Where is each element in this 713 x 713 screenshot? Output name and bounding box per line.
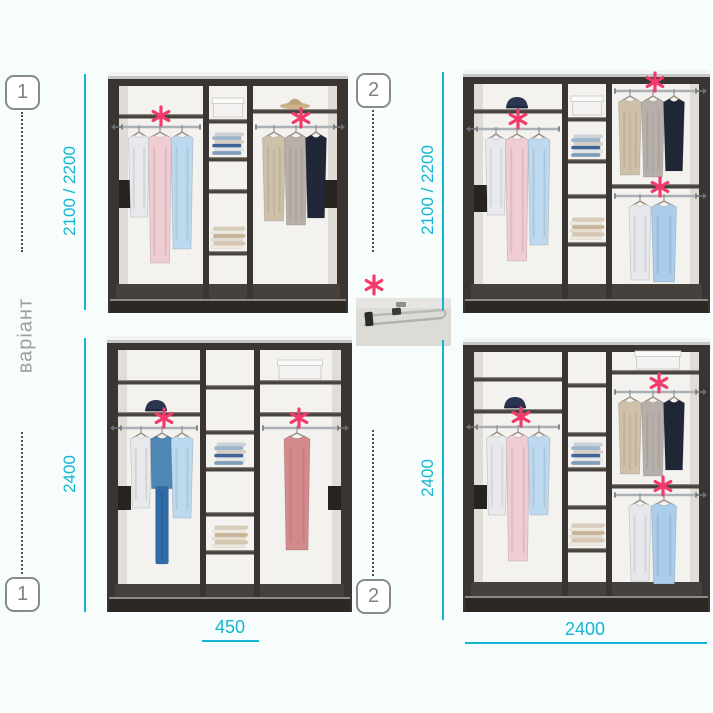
wardrobe-illustration-variant1-h2100: [108, 72, 348, 313]
dimension-label-top-left-height: 2100 / 2200: [60, 91, 80, 291]
dimension-label-bottom-right-height: 2400: [418, 378, 438, 578]
wardrobe-photo-variant1-h2100: [108, 72, 348, 313]
pullout-rail-photo: [352, 272, 456, 350]
variant-2-connector-bottom: [372, 430, 374, 576]
pullout-rail-legend: [352, 272, 456, 350]
variant-1-connector-top: [21, 112, 23, 252]
dimension-line-bottom-left-shelf-width: [202, 640, 259, 642]
variant-2-badge-top: 2: [356, 73, 391, 108]
dimension-line-top-right-height: [442, 72, 444, 310]
wardrobe-photo-variant1-h2400: [107, 336, 352, 612]
dimension-label-top-right-height: 2100 / 2200: [418, 90, 438, 290]
variant-side-label: варіант: [15, 266, 38, 406]
wardrobe-illustration-variant2-h2400: [463, 338, 710, 612]
wardrobe-variants-diagram: 1 2 1 2 варіант 2100 / 2200 2100 / 2200 …: [0, 0, 713, 713]
dimension-line-bottom-right-height: [442, 340, 444, 620]
wardrobe-illustration-variant2-h2100: [463, 70, 710, 313]
variant-1-badge-bottom: 1: [5, 577, 40, 612]
wardrobe-photo-variant2-h2100: [463, 70, 710, 313]
variant-1-connector-bottom: [21, 432, 23, 574]
dimension-label-bottom-left-shelf-width: 450: [180, 617, 280, 638]
variant-1-badge-top: 1: [5, 75, 40, 110]
dimension-line-top-left-height: [84, 74, 86, 310]
dimension-line-bottom-right-width: [465, 642, 707, 644]
pullout-rod-marker: [366, 276, 382, 294]
wardrobe-illustration-variant1-h2400: [107, 336, 352, 612]
dimension-label-bottom-left-height: 2400: [60, 374, 80, 574]
variant-2-badge-bottom: 2: [356, 579, 391, 614]
dimension-label-bottom-right-width: 2400: [535, 619, 635, 640]
variant-2-connector-top: [372, 110, 374, 252]
wardrobe-photo-variant2-h2400: [463, 338, 710, 612]
dimension-line-bottom-left-height: [84, 338, 86, 612]
